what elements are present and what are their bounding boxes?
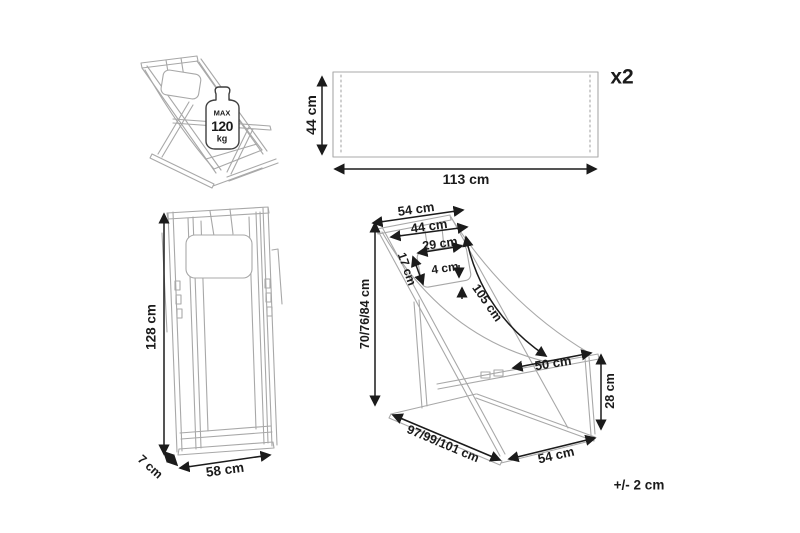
headrest-pillow-perspective: [160, 69, 201, 100]
max-load-unit-label: kg: [217, 135, 228, 144]
perspective-deckchair-drawing: [141, 56, 278, 188]
fabric-width-label: 113 cm: [443, 172, 490, 186]
fabric-panel-drawing: [322, 72, 598, 169]
pillow-thickness-label: 4 cm: [431, 260, 460, 276]
max-load-prefix-label: MAX: [214, 109, 231, 117]
front-depth-arrow: [164, 452, 177, 465]
seat-front-height-label: 28 cm: [604, 373, 617, 408]
quantity-label: x2: [610, 67, 633, 88]
folded-front-view-drawing: [162, 207, 282, 468]
tolerance-note: +/- 2 cm: [614, 478, 665, 492]
side-height-label: 70/76/84 cm: [359, 279, 372, 349]
front-height-label: 128 cm: [144, 304, 158, 350]
headrest-pillow-front: [186, 235, 252, 278]
max-load-value-label: 120: [211, 119, 233, 133]
product-dimensions-diagram: MAX 120 kg 44 cm 113 cm x2 128 cm 7 cm 5…: [0, 0, 800, 533]
fabric-height-label: 44 cm: [304, 95, 318, 135]
